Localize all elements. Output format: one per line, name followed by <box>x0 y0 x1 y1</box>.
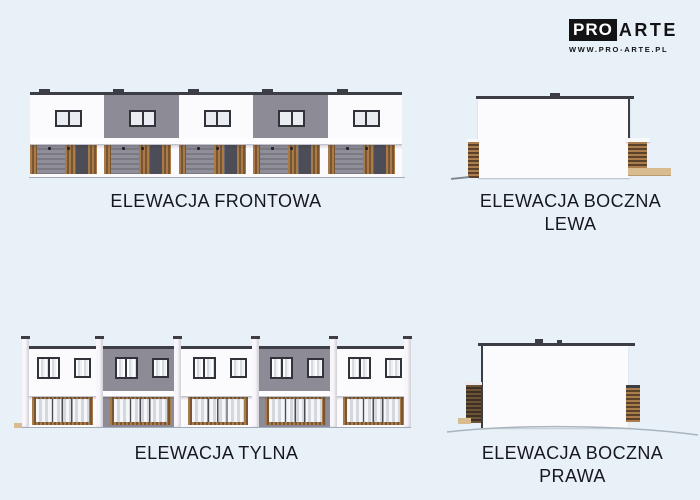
entry-door <box>149 145 162 174</box>
entry-door <box>75 145 88 174</box>
caption-line-1: ELEWACJA BOCZNA <box>482 443 663 463</box>
patio-glazing <box>347 399 400 422</box>
patio-glazing <box>192 399 245 422</box>
wood-pillar <box>162 145 171 174</box>
terrace-plank <box>628 168 671 175</box>
window-pane <box>57 112 68 125</box>
rear-unit-upper-facade <box>22 349 100 391</box>
window-pane <box>350 359 359 377</box>
wood-slat-screen <box>468 142 479 178</box>
caption-line-2: PRAWA <box>539 466 606 486</box>
front-unit-ground-floor <box>30 145 104 178</box>
front-window <box>204 110 231 127</box>
wood-slat-screen <box>626 388 640 422</box>
wall-lamp <box>271 147 274 150</box>
patio-door-frame <box>32 397 93 425</box>
front-unit <box>253 89 327 178</box>
wall-lamp <box>365 147 368 150</box>
wood-pillar <box>311 145 320 174</box>
rear-unit-ground-floor <box>255 397 333 427</box>
proarte-logo-mark: PRO ARTE <box>569 19 685 41</box>
window-pane <box>387 360 400 376</box>
front-elevation-drawing <box>30 89 402 178</box>
garage-canopy <box>179 138 253 145</box>
wood-pillar <box>328 145 335 174</box>
wall-edge-line <box>628 99 630 139</box>
chimney <box>550 93 560 96</box>
rear-unit-ground-floor <box>100 397 178 427</box>
right-side-elevation-drawing <box>445 330 700 440</box>
wall-edge-line <box>481 346 483 428</box>
pilaster-column <box>252 336 259 427</box>
rear-window <box>37 357 60 379</box>
window-pane <box>195 359 204 377</box>
wall-lamp <box>290 147 293 150</box>
side-wall <box>478 99 630 178</box>
window-pane <box>309 360 322 376</box>
window-pane <box>280 112 291 125</box>
rear-unit-upper-facade <box>100 349 178 391</box>
wood-pillar <box>179 145 186 174</box>
front-unit-ground-floor <box>104 145 178 178</box>
wall-lamp <box>197 147 200 150</box>
ground-line <box>445 422 700 438</box>
garage-canopy <box>253 138 327 145</box>
patio-glazing <box>114 399 167 422</box>
window-pane <box>50 359 59 377</box>
entry-door <box>224 145 237 174</box>
logo-pro-box: PRO <box>569 19 617 41</box>
rear-elevation-caption: ELEWACJA TYLNA <box>22 442 411 465</box>
rear-window <box>152 358 169 378</box>
rear-window <box>270 357 293 379</box>
side-wall <box>483 346 628 428</box>
wood-pillar <box>237 145 246 174</box>
pilaster-column <box>404 336 411 427</box>
window-pane <box>131 112 142 125</box>
window-pane <box>283 359 292 377</box>
patio-glazing <box>269 399 322 422</box>
rear-window <box>348 357 371 379</box>
garage-canopy <box>30 138 104 145</box>
rear-unit <box>178 336 256 430</box>
wall-lamp <box>216 147 219 150</box>
window-pane <box>70 112 81 125</box>
window-pane <box>232 360 245 376</box>
logo-arte-text: ARTE <box>619 19 678 41</box>
garage-canopy <box>328 138 402 145</box>
rear-unit-ground-floor <box>333 397 411 427</box>
window-pane <box>144 112 155 125</box>
proarte-logo: PRO ARTE WWW.PRO-ARTE.PL <box>569 19 685 54</box>
garage-door <box>335 145 363 174</box>
window-pane <box>355 112 366 125</box>
garage-door <box>186 145 214 174</box>
front-unit <box>30 89 104 178</box>
wood-pillar <box>30 145 37 174</box>
caption-line-2: LEWA <box>545 214 597 234</box>
rear-unit-upper-facade <box>178 349 256 391</box>
garage-door <box>111 145 139 174</box>
front-unit-ground-floor <box>328 145 402 178</box>
window-pane <box>293 112 304 125</box>
front-roof-line <box>30 92 402 95</box>
rear-unit-upper-facade <box>333 349 411 391</box>
wall-lamp <box>67 147 70 150</box>
patio-door-frame <box>188 397 249 425</box>
front-window <box>129 110 156 127</box>
window-pane <box>361 359 370 377</box>
front-window <box>278 110 305 127</box>
rear-unit <box>333 336 411 430</box>
rear-unit <box>100 336 178 430</box>
window-pane <box>367 112 378 125</box>
ground-line <box>451 176 469 180</box>
front-unit-upper-facade <box>30 95 104 138</box>
right-side-elevation-caption: ELEWACJA BOCZNA PRAWA <box>445 442 700 488</box>
elevation-sheet: PRO ARTE WWW.PRO-ARTE.PL ELEWACJA FRONTO… <box>0 0 700 500</box>
entry-door <box>373 145 386 174</box>
window-pane <box>39 359 48 377</box>
rear-window <box>115 357 138 379</box>
wood-pillar <box>253 145 260 174</box>
left-side-elevation-drawing <box>450 85 695 190</box>
wall-lamp <box>346 147 349 150</box>
logo-website-text: WWW.PRO-ARTE.PL <box>569 45 685 54</box>
front-unit <box>104 89 178 178</box>
front-unit-ground-floor <box>253 145 327 178</box>
garage-door <box>37 145 65 174</box>
patio-door-frame <box>265 397 326 425</box>
rear-unit <box>22 336 100 430</box>
front-unit-upper-facade <box>179 95 253 138</box>
window-pane <box>272 359 281 377</box>
rear-unit-ground-floor <box>22 397 100 427</box>
rear-elevation-drawing <box>22 336 411 430</box>
front-unit-ground-floor <box>179 145 253 178</box>
rear-unit-ground-floor <box>178 397 256 427</box>
patio-door-frame <box>110 397 171 425</box>
front-window <box>55 110 82 127</box>
pilaster-column <box>96 336 103 427</box>
patio-door-frame <box>343 397 404 425</box>
window-pane <box>205 359 214 377</box>
patio-glazing <box>36 399 89 422</box>
rear-unit <box>255 336 333 430</box>
rear-window <box>307 358 324 378</box>
front-unit-upper-facade <box>328 95 402 138</box>
window-pane <box>206 112 217 125</box>
wood-pillar <box>386 145 395 174</box>
caption-line-1: ELEWACJA BOCZNA <box>480 191 661 211</box>
wood-pillar <box>88 145 97 174</box>
wood-pillar <box>104 145 111 174</box>
wall-lamp <box>48 147 51 150</box>
window-pane <box>154 360 167 376</box>
window-pane <box>76 360 89 376</box>
entry-door <box>298 145 311 174</box>
rear-window <box>230 358 247 378</box>
garage-canopy <box>104 138 178 145</box>
rear-window <box>385 358 402 378</box>
front-unit-upper-facade <box>253 95 327 138</box>
left-side-elevation-caption: ELEWACJA BOCZNA LEWA <box>448 190 693 236</box>
window-pane <box>127 359 136 377</box>
rear-window <box>193 357 216 379</box>
chimney <box>557 340 562 343</box>
rear-unit-upper-facade <box>255 349 333 391</box>
front-elevation-caption: ELEWACJA FRONTOWA <box>30 190 402 213</box>
front-window <box>353 110 380 127</box>
window-pane <box>218 112 229 125</box>
window-pane <box>117 359 126 377</box>
pilaster-column <box>174 336 181 427</box>
rear-window <box>74 358 91 378</box>
chimney <box>535 339 543 343</box>
garage-door <box>260 145 288 174</box>
front-unit <box>179 89 253 178</box>
front-unit <box>328 89 402 178</box>
front-unit-upper-facade <box>104 95 178 138</box>
pilaster-column <box>22 336 29 427</box>
pilaster-column <box>330 336 337 427</box>
